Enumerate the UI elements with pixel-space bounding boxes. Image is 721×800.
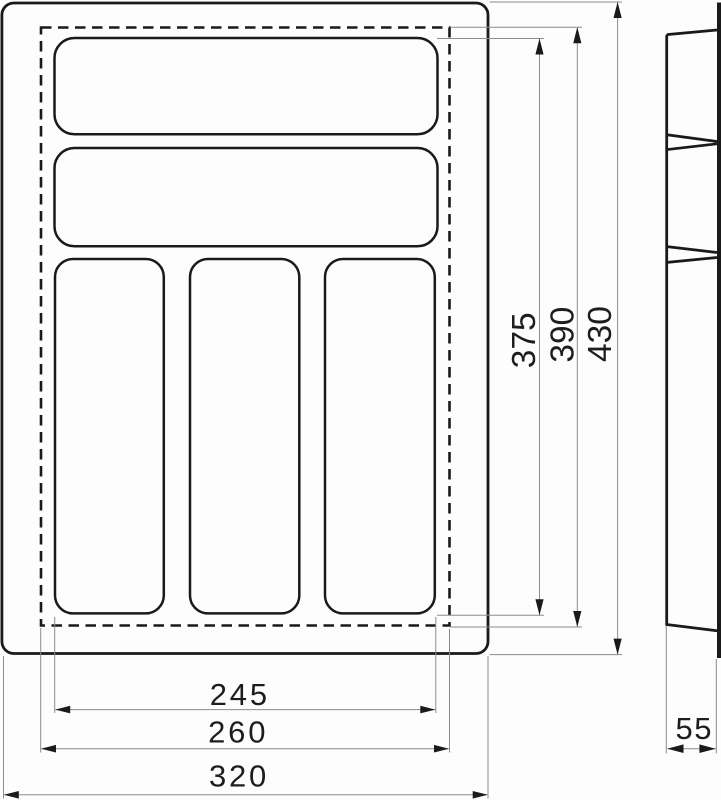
svg-text:320: 320 — [209, 759, 269, 794]
svg-text:260: 260 — [208, 715, 268, 750]
svg-text:245: 245 — [210, 677, 270, 712]
svg-text:375: 375 — [506, 312, 543, 368]
svg-text:430: 430 — [582, 306, 619, 362]
svg-text:390: 390 — [544, 307, 581, 363]
svg-text:55: 55 — [676, 711, 713, 746]
